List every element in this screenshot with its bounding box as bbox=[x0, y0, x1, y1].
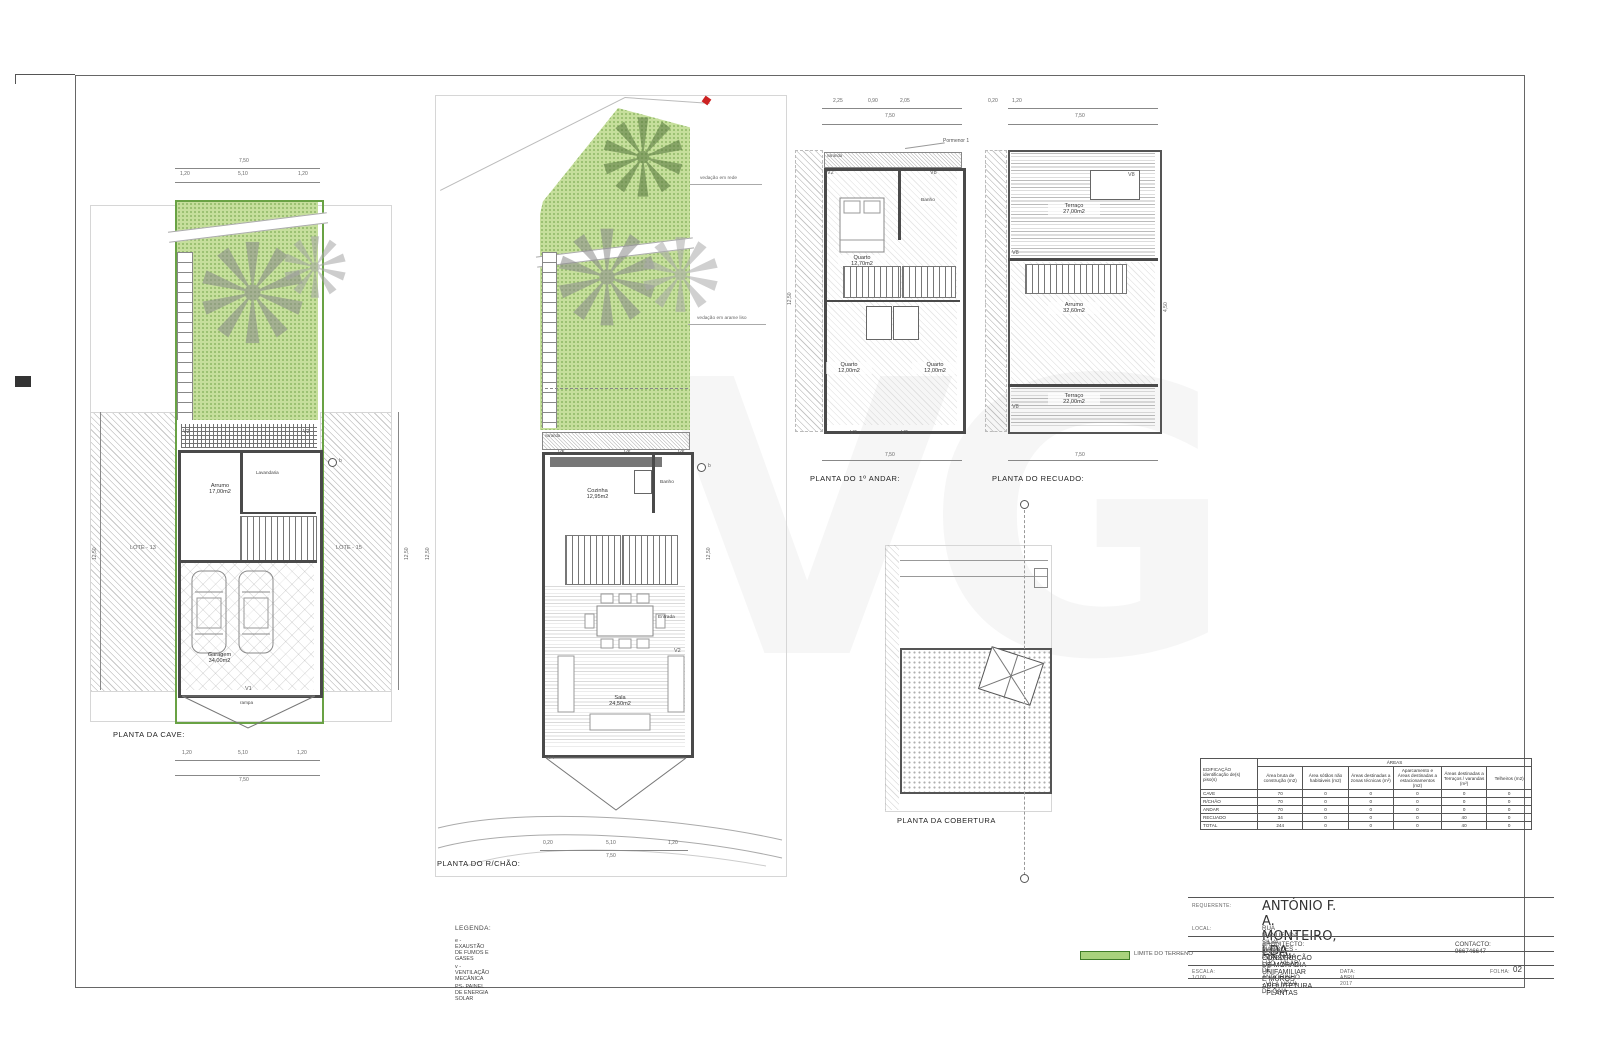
dim-label: 7,50 bbox=[1075, 452, 1085, 458]
room-label: Banho bbox=[660, 480, 674, 486]
roof-line bbox=[900, 576, 1048, 577]
room-area: 12,00m2 bbox=[912, 368, 958, 374]
areas-cell: 0 bbox=[1487, 798, 1532, 806]
stepped-wall bbox=[177, 252, 193, 420]
areas-row: TOTAL244000400 bbox=[1201, 822, 1532, 830]
neighbor-hatch-right bbox=[320, 412, 392, 692]
note-leader bbox=[688, 324, 766, 325]
dim-label: 7,50 bbox=[885, 113, 895, 119]
sofa-icons bbox=[556, 652, 686, 732]
room-area: 34,00m2 bbox=[192, 658, 247, 664]
areas-cell: 0 bbox=[1487, 814, 1532, 822]
areas-cell: 0 bbox=[1441, 790, 1486, 798]
dim-line bbox=[822, 124, 962, 125]
areas-col-header: Áreas destinadas a Terraços / varandas (… bbox=[1441, 767, 1486, 790]
window-label: V8 bbox=[1012, 250, 1019, 257]
room-label: Arrumo 32,60m2 bbox=[1048, 302, 1100, 314]
areas-cell: 0 bbox=[1348, 822, 1393, 830]
stairs bbox=[565, 535, 621, 585]
stairs bbox=[622, 535, 678, 585]
room-area: 17,00m2 bbox=[190, 489, 250, 495]
areas-cell: 0 bbox=[1303, 814, 1348, 822]
areas-cell: 70 bbox=[1257, 798, 1302, 806]
dim-line bbox=[175, 775, 320, 776]
partition bbox=[898, 170, 901, 240]
areas-row-label: CAVE bbox=[1201, 790, 1258, 798]
areas-cell: 0 bbox=[1487, 806, 1532, 814]
section-marker-label: b bbox=[339, 458, 342, 464]
areas-col-header: Telheiros (m2) bbox=[1487, 767, 1532, 790]
title-block-rule bbox=[1188, 965, 1554, 966]
neighbor-hatch-left bbox=[90, 412, 177, 692]
areas-cell: 0 bbox=[1303, 798, 1348, 806]
window-label: V8 bbox=[1128, 172, 1135, 179]
requerente-label: REQUERENTE: bbox=[1192, 903, 1231, 909]
bath-core bbox=[866, 306, 892, 340]
section-marker-label: b bbox=[708, 463, 711, 469]
bath-core bbox=[893, 306, 919, 340]
ramp-label: rampa bbox=[240, 700, 253, 706]
window-label: V2 bbox=[303, 429, 310, 436]
dim-label: 12,50 bbox=[92, 547, 98, 560]
fence-note: vedação em arame liso bbox=[697, 316, 747, 322]
room-label: Quarto 12,00m2 bbox=[912, 362, 958, 374]
dim-label: 4,50 bbox=[1163, 302, 1169, 312]
grating-band bbox=[181, 424, 317, 448]
folha-number: 02 bbox=[1513, 965, 1522, 974]
limite-swatch bbox=[1080, 951, 1130, 960]
areas-cell: 70 bbox=[1257, 806, 1302, 814]
varanda-strip bbox=[824, 152, 962, 168]
areas-cell: 244 bbox=[1257, 822, 1302, 830]
areas-cell: 0 bbox=[1393, 806, 1441, 814]
roof-line bbox=[900, 560, 1048, 561]
areas-row-label: TOTAL bbox=[1201, 822, 1258, 830]
centerline bbox=[1024, 505, 1025, 880]
dim-label: 12,50 bbox=[787, 292, 793, 305]
areas-row-label: RECUADO bbox=[1201, 814, 1258, 822]
bed-icon bbox=[838, 196, 886, 254]
window-label: V7 bbox=[850, 430, 857, 437]
plan-title: PLANTA DA CAVE: bbox=[113, 730, 185, 739]
room-area: 32,60m2 bbox=[1048, 308, 1100, 314]
varanda-label: varanda bbox=[545, 433, 560, 438]
areas-cell: 0 bbox=[1393, 790, 1441, 798]
stove bbox=[634, 470, 652, 494]
dim-label: 1,20 bbox=[180, 171, 190, 177]
room-label: Terraço 22,00m2 bbox=[1048, 393, 1100, 405]
window-label: V2 bbox=[183, 429, 190, 436]
varanda-strip bbox=[542, 432, 690, 450]
stairs bbox=[902, 266, 956, 298]
title-block-rule bbox=[1188, 978, 1554, 979]
section-marker bbox=[697, 463, 706, 472]
section-marker bbox=[1020, 874, 1029, 883]
areas-row: ANDAR7000000 bbox=[1201, 806, 1532, 814]
areas-cell: 40 bbox=[1441, 814, 1486, 822]
areas-col-header: Aparcamento e Áreas destinadas a estacio… bbox=[1393, 767, 1441, 790]
plan-title: PLANTA DO R/CHÃO: bbox=[437, 859, 520, 868]
dim-label: 12,50 bbox=[404, 547, 410, 560]
areas-cell: 0 bbox=[1303, 806, 1348, 814]
areas-row-label: ANDAR bbox=[1201, 806, 1258, 814]
areas-cell: 0 bbox=[1487, 822, 1532, 830]
areas-row: CAVE7000000 bbox=[1201, 790, 1532, 798]
dim-line bbox=[822, 460, 962, 461]
section-marker bbox=[1020, 500, 1029, 509]
fold-mark-corner bbox=[15, 74, 16, 84]
areas-cell: 0 bbox=[1303, 822, 1348, 830]
dim-label: 5,10 bbox=[238, 171, 248, 177]
areas-col-header: Áreas destinadas a zonas técnicas (m²) bbox=[1348, 767, 1393, 790]
room-area: 27,00m2 bbox=[1048, 209, 1100, 215]
room-label: Terraço 27,00m2 bbox=[1048, 203, 1100, 215]
areas-row-header: EDIFICAÇÃO identificação de(s) piso(s) bbox=[1201, 759, 1258, 790]
room-label: Lavandaria bbox=[256, 470, 279, 476]
dim-line bbox=[1008, 460, 1158, 461]
lote-label: LOTE - 15 bbox=[336, 545, 362, 552]
dim-label: 7,50 bbox=[606, 853, 616, 859]
escala-value: ESCALA: 1/100 bbox=[1192, 969, 1215, 981]
partition bbox=[1008, 384, 1158, 387]
room-label: Cozinha 12,95m2 bbox=[570, 488, 625, 500]
room-label: Arrumo 17,00m2 bbox=[190, 483, 250, 495]
neighbor-hatch-left bbox=[795, 150, 823, 432]
room-area: 24,50m2 bbox=[595, 701, 645, 707]
areas-title: ÁREAS bbox=[1257, 759, 1531, 767]
areas-table: EDIFICAÇÃO identificação de(s) piso(s)ÁR… bbox=[1200, 758, 1532, 830]
plan-title: PLANTA DO 1º ANDAR: bbox=[810, 474, 900, 483]
dim-label: 2,25 bbox=[833, 98, 843, 104]
fold-mark-tab bbox=[15, 376, 31, 387]
room-area: 12,00m2 bbox=[826, 368, 872, 374]
areas-cell: 34 bbox=[1257, 814, 1302, 822]
title-block-rule bbox=[1188, 897, 1554, 898]
stairs bbox=[843, 266, 901, 298]
partition bbox=[240, 512, 316, 514]
folha-label: FOLHA: bbox=[1490, 969, 1510, 975]
dim-label: 12,50 bbox=[425, 547, 431, 560]
fold-mark-line bbox=[15, 74, 75, 75]
areas-cell: 70 bbox=[1257, 790, 1302, 798]
areas-table-grid: EDIFICAÇÃO identificação de(s) piso(s)ÁR… bbox=[1200, 758, 1532, 830]
areas-cell: 0 bbox=[1348, 790, 1393, 798]
areas-row: RECUADO34000400 bbox=[1201, 814, 1532, 822]
areas-col-header: Área sótãos não habitáveis (m2) bbox=[1303, 767, 1348, 790]
title-block-rule bbox=[1188, 936, 1554, 937]
shrub-line bbox=[545, 388, 688, 389]
fence-note: vedação em rede bbox=[700, 176, 737, 182]
partition bbox=[652, 455, 655, 513]
legend-list: e - EXAUSTÃO DE FUMOS E GASESv - VENTILA… bbox=[455, 938, 489, 1004]
areas-cell: 0 bbox=[1441, 798, 1486, 806]
dim-line bbox=[398, 412, 399, 690]
dim-label: 7,50 bbox=[239, 777, 249, 783]
areas-cell: 0 bbox=[1348, 814, 1393, 822]
neighbor-hatch-left bbox=[885, 545, 899, 810]
neighbor-hatch-left bbox=[985, 150, 1007, 432]
areas-cell: 40 bbox=[1441, 822, 1486, 830]
areas-cell: 0 bbox=[1393, 814, 1441, 822]
limite-label: LIMITE DO TERRENO bbox=[1134, 951, 1193, 958]
areas-cell: 0 bbox=[1348, 806, 1393, 814]
room-label: Entrada bbox=[658, 615, 675, 621]
tree-icon bbox=[280, 232, 350, 307]
car-icon bbox=[189, 568, 229, 656]
areas-cell: 0 bbox=[1487, 790, 1532, 798]
dim-line bbox=[175, 182, 320, 183]
dim-label: 12,50 bbox=[706, 547, 712, 560]
areas-row: R/CHÃO7000000 bbox=[1201, 798, 1532, 806]
areas-cell: 0 bbox=[1393, 822, 1441, 830]
kitchen-counter bbox=[550, 457, 662, 467]
partition bbox=[1008, 258, 1158, 261]
window-label: V7 bbox=[901, 430, 908, 437]
dim-label: 5,10 bbox=[238, 750, 248, 756]
note-leader bbox=[690, 184, 762, 185]
tree-icon bbox=[638, 232, 723, 322]
dining-table-icon bbox=[583, 590, 667, 652]
dim-line bbox=[540, 850, 688, 851]
varanda-label: varanda bbox=[827, 153, 842, 158]
legend-item: e - EXAUSTÃO DE FUMOS E GASES bbox=[455, 938, 489, 962]
legend-item: v - VENTILAÇÃO MECÂNICA bbox=[455, 964, 489, 982]
dim-label: 5,10 bbox=[606, 840, 616, 846]
dim-label: 0,20 bbox=[988, 98, 998, 104]
room-area: 12,95m2 bbox=[570, 494, 625, 500]
pormenor-label: Pormenor 1 bbox=[943, 138, 969, 144]
dim-line bbox=[1008, 108, 1158, 109]
dim-label: 7,50 bbox=[1075, 113, 1085, 119]
car-icon bbox=[236, 568, 276, 656]
dim-label: 0,20 bbox=[543, 840, 553, 846]
dim-line bbox=[100, 412, 101, 690]
areas-cell: 0 bbox=[1348, 798, 1393, 806]
contacto-value: CONTACTO: 966746647 bbox=[1455, 941, 1491, 955]
tree-icon bbox=[598, 112, 688, 207]
stairs bbox=[1025, 264, 1127, 294]
stairs bbox=[240, 516, 317, 562]
dim-label: 1,20 bbox=[182, 750, 192, 756]
local-label: LOCAL: bbox=[1192, 926, 1212, 932]
dim-label: 2,05 bbox=[900, 98, 910, 104]
roof-detail bbox=[1034, 568, 1048, 588]
window-label: V1 bbox=[245, 686, 252, 693]
dim-label: 7,50 bbox=[239, 158, 249, 164]
lote-label: LOTE - 13 bbox=[130, 545, 156, 552]
dim-line bbox=[175, 168, 320, 169]
title-block-rule bbox=[1188, 951, 1554, 952]
dim-line bbox=[175, 760, 320, 761]
legend-item: PS- PAINEL DE ENERGIA SOLAR bbox=[455, 984, 489, 1002]
room-label: Banho bbox=[921, 198, 935, 204]
dim-label: 0,90 bbox=[868, 98, 878, 104]
room-label: Sala 24,50m2 bbox=[595, 695, 645, 707]
areas-cell: 0 bbox=[1441, 806, 1486, 814]
room-area: 22,00m2 bbox=[1048, 399, 1100, 405]
room-label: Quarto 12,00m2 bbox=[826, 362, 872, 374]
dim-label: 1,20 bbox=[298, 171, 308, 177]
areas-cell: 0 bbox=[1303, 790, 1348, 798]
dim-line bbox=[1008, 124, 1158, 125]
areas-cell: 0 bbox=[1393, 798, 1441, 806]
plan-title: PLANTA DA COBERTURA bbox=[897, 816, 996, 825]
dim-label: 1,20 bbox=[668, 840, 678, 846]
dim-label: 1,20 bbox=[297, 750, 307, 756]
obra-title: CONSTRUÇÃO DE MORADIA UNIFAMILIAR E MURO… bbox=[1262, 955, 1312, 997]
plan-title: PLANTA DO RECUADO: bbox=[992, 474, 1084, 483]
room-label: Garagem 34,00m2 bbox=[192, 652, 247, 664]
partition bbox=[824, 300, 960, 302]
areas-col-header: Área bruta de construção (m2) bbox=[1257, 767, 1302, 790]
dim-line bbox=[822, 108, 962, 109]
dim-label: 1,20 bbox=[1012, 98, 1022, 104]
drawing-sheet: VG V2 V2 Arrumo 17,00m2 Lavandaria bbox=[0, 0, 1600, 1062]
areas-row-label: R/CHÃO bbox=[1201, 798, 1258, 806]
dim-label: 7,50 bbox=[885, 452, 895, 458]
legend-title: LEGENDA: bbox=[455, 925, 491, 933]
section-marker bbox=[328, 458, 337, 467]
